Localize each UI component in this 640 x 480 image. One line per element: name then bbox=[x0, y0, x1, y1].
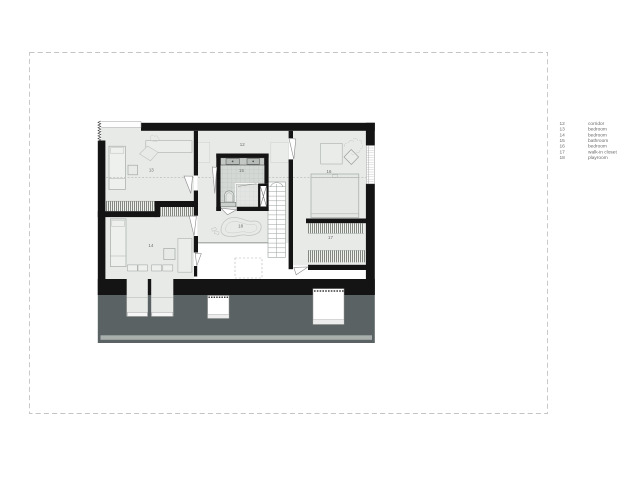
svg-text:15: 15 bbox=[560, 138, 566, 144]
svg-text:12: 12 bbox=[240, 142, 245, 147]
svg-text:16: 16 bbox=[560, 144, 566, 150]
svg-text:18: 18 bbox=[560, 155, 566, 161]
svg-text:bathroom: bathroom bbox=[588, 138, 608, 144]
svg-text:12: 12 bbox=[560, 121, 566, 127]
svg-text:bedroom: bedroom bbox=[588, 132, 607, 138]
svg-text:18: 18 bbox=[238, 223, 243, 228]
svg-text:walk-in closet: walk-in closet bbox=[588, 149, 617, 155]
svg-text:17: 17 bbox=[560, 149, 566, 155]
svg-text:corridor: corridor bbox=[588, 121, 605, 127]
svg-text:17: 17 bbox=[328, 235, 333, 240]
svg-text:playroom: playroom bbox=[588, 155, 608, 161]
svg-text:15: 15 bbox=[239, 168, 244, 173]
svg-text:14: 14 bbox=[560, 132, 566, 138]
svg-text:16: 16 bbox=[327, 169, 332, 174]
svg-text:14: 14 bbox=[149, 243, 154, 248]
svg-text:13: 13 bbox=[560, 127, 566, 133]
svg-text:bedroom: bedroom bbox=[588, 127, 607, 133]
svg-text:bedroom: bedroom bbox=[588, 144, 607, 150]
svg-text:13: 13 bbox=[149, 167, 154, 172]
